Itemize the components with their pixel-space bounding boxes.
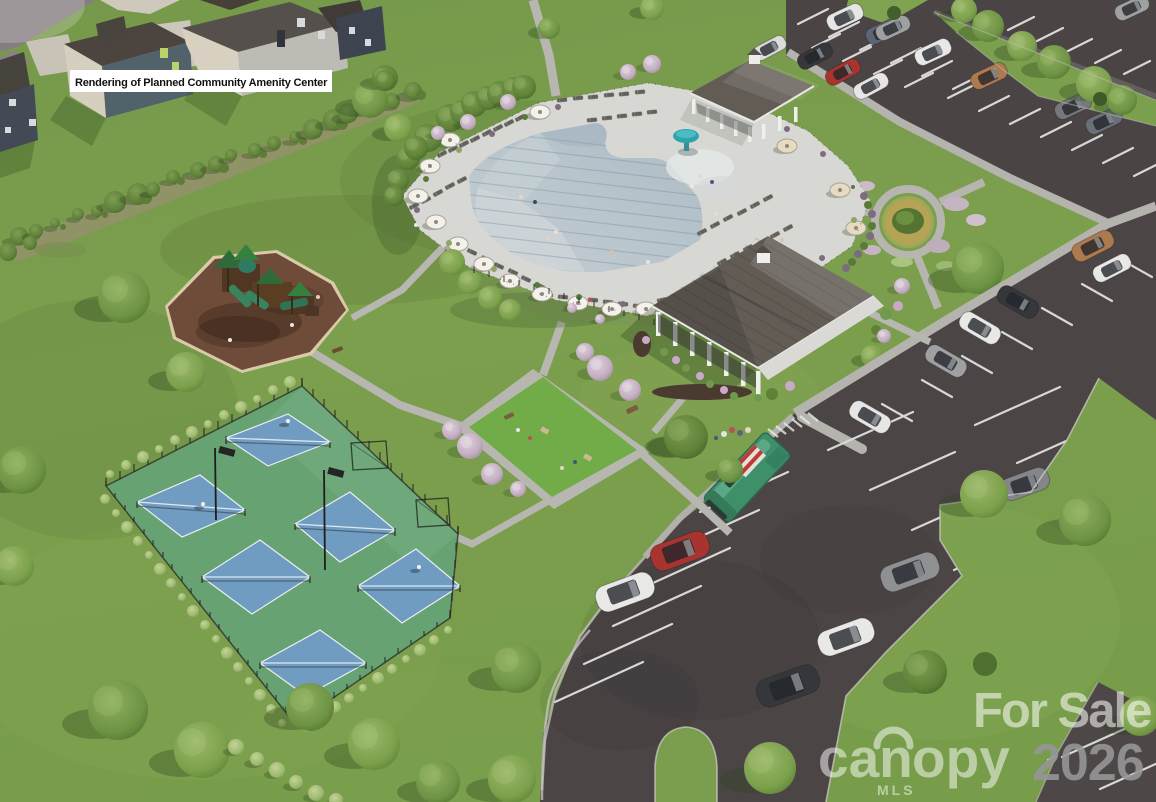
svg-text:can: can — [818, 727, 913, 789]
svg-text:Rendering of Planned Community: Rendering of Planned Community Amenity C… — [75, 77, 328, 89]
svg-text:opy: opy — [912, 727, 1010, 789]
svg-text:MLS: MLS — [877, 782, 916, 798]
svg-text:2026: 2026 — [1032, 734, 1144, 792]
